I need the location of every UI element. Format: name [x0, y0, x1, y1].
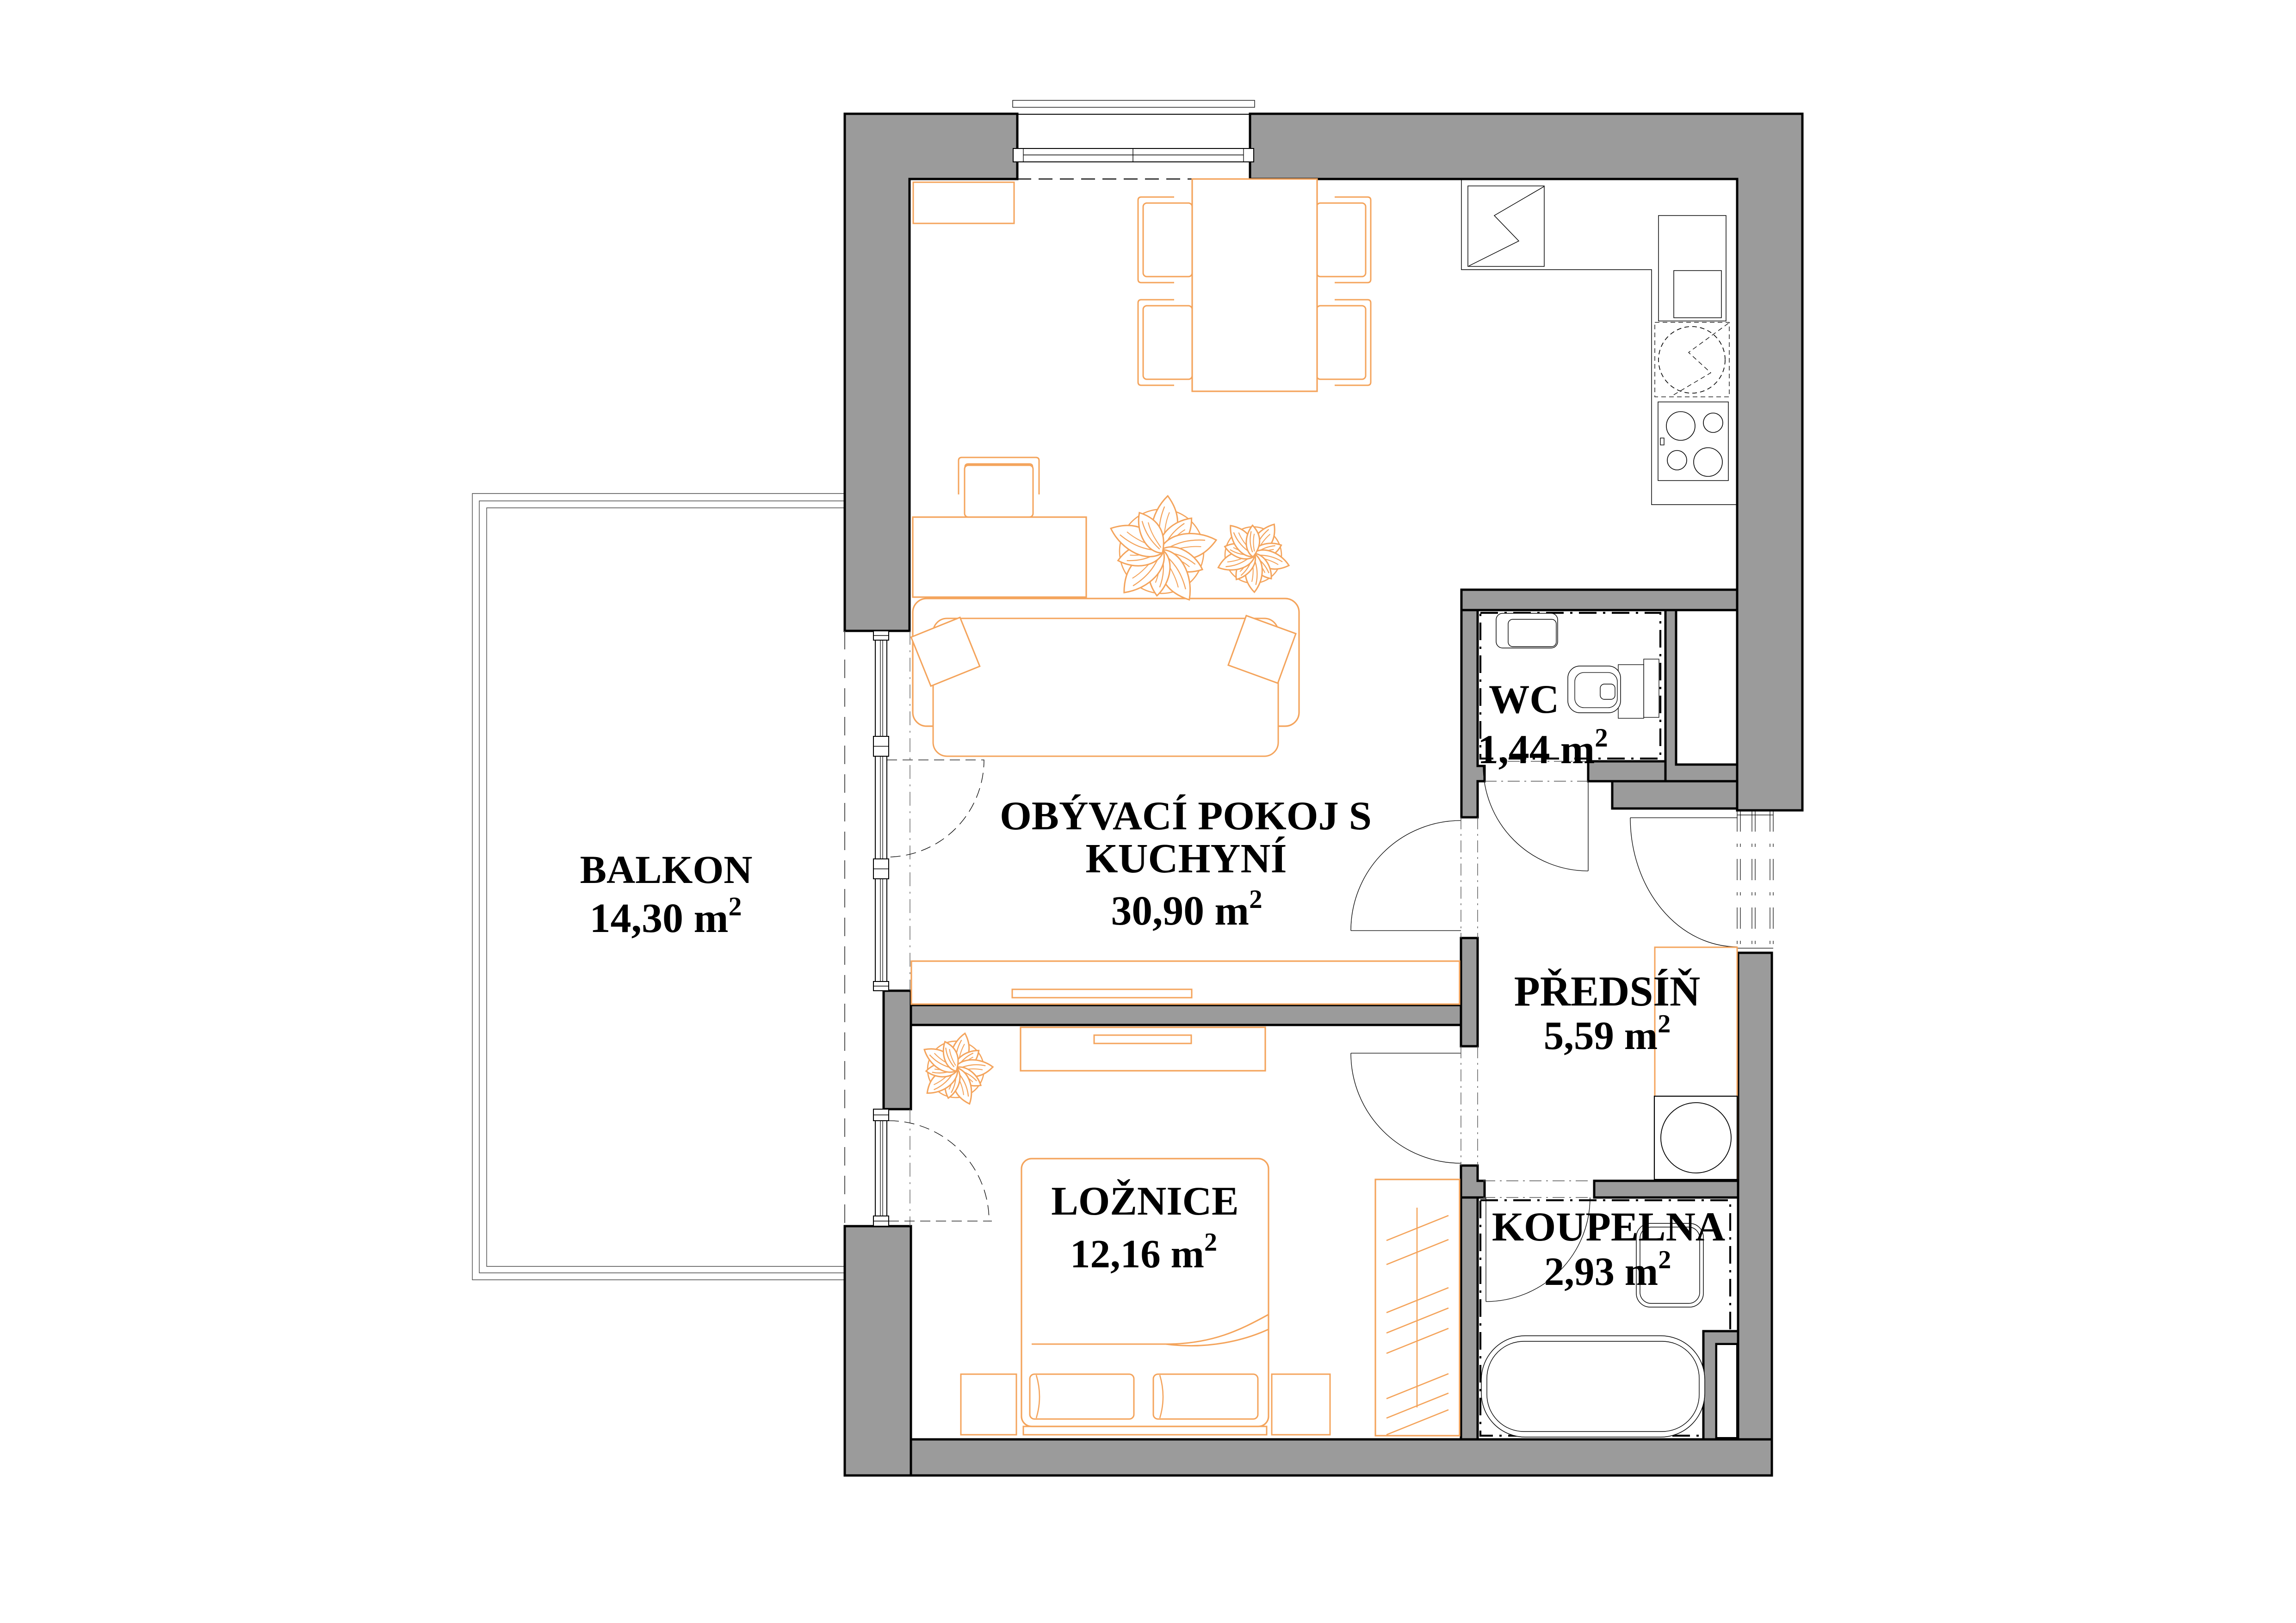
svg-text:1,44 m2: 1,44 m2 — [1478, 723, 1608, 772]
svg-text:14,30 m2: 14,30 m2 — [590, 891, 742, 941]
svg-text:KUCHYNÍ: KUCHYNÍ — [1085, 836, 1287, 882]
svg-text:LOŽNICE: LOŽNICE — [1051, 1179, 1238, 1224]
svg-text:5,59 m2: 5,59 m2 — [1544, 1010, 1671, 1058]
svg-text:BALKON: BALKON — [580, 847, 753, 892]
svg-text:PŘEDSÍŇ: PŘEDSÍŇ — [1514, 968, 1700, 1015]
svg-text:KOUPELNA: KOUPELNA — [1492, 1204, 1725, 1250]
svg-text:30,90 m2: 30,90 m2 — [1111, 885, 1262, 934]
svg-text:12,16 m2: 12,16 m2 — [1070, 1228, 1217, 1276]
svg-text:OBÝVACÍ POKOJ S: OBÝVACÍ POKOJ S — [1000, 793, 1372, 839]
svg-text:2,93 m2: 2,93 m2 — [1544, 1246, 1671, 1294]
svg-text:WC: WC — [1489, 677, 1559, 722]
